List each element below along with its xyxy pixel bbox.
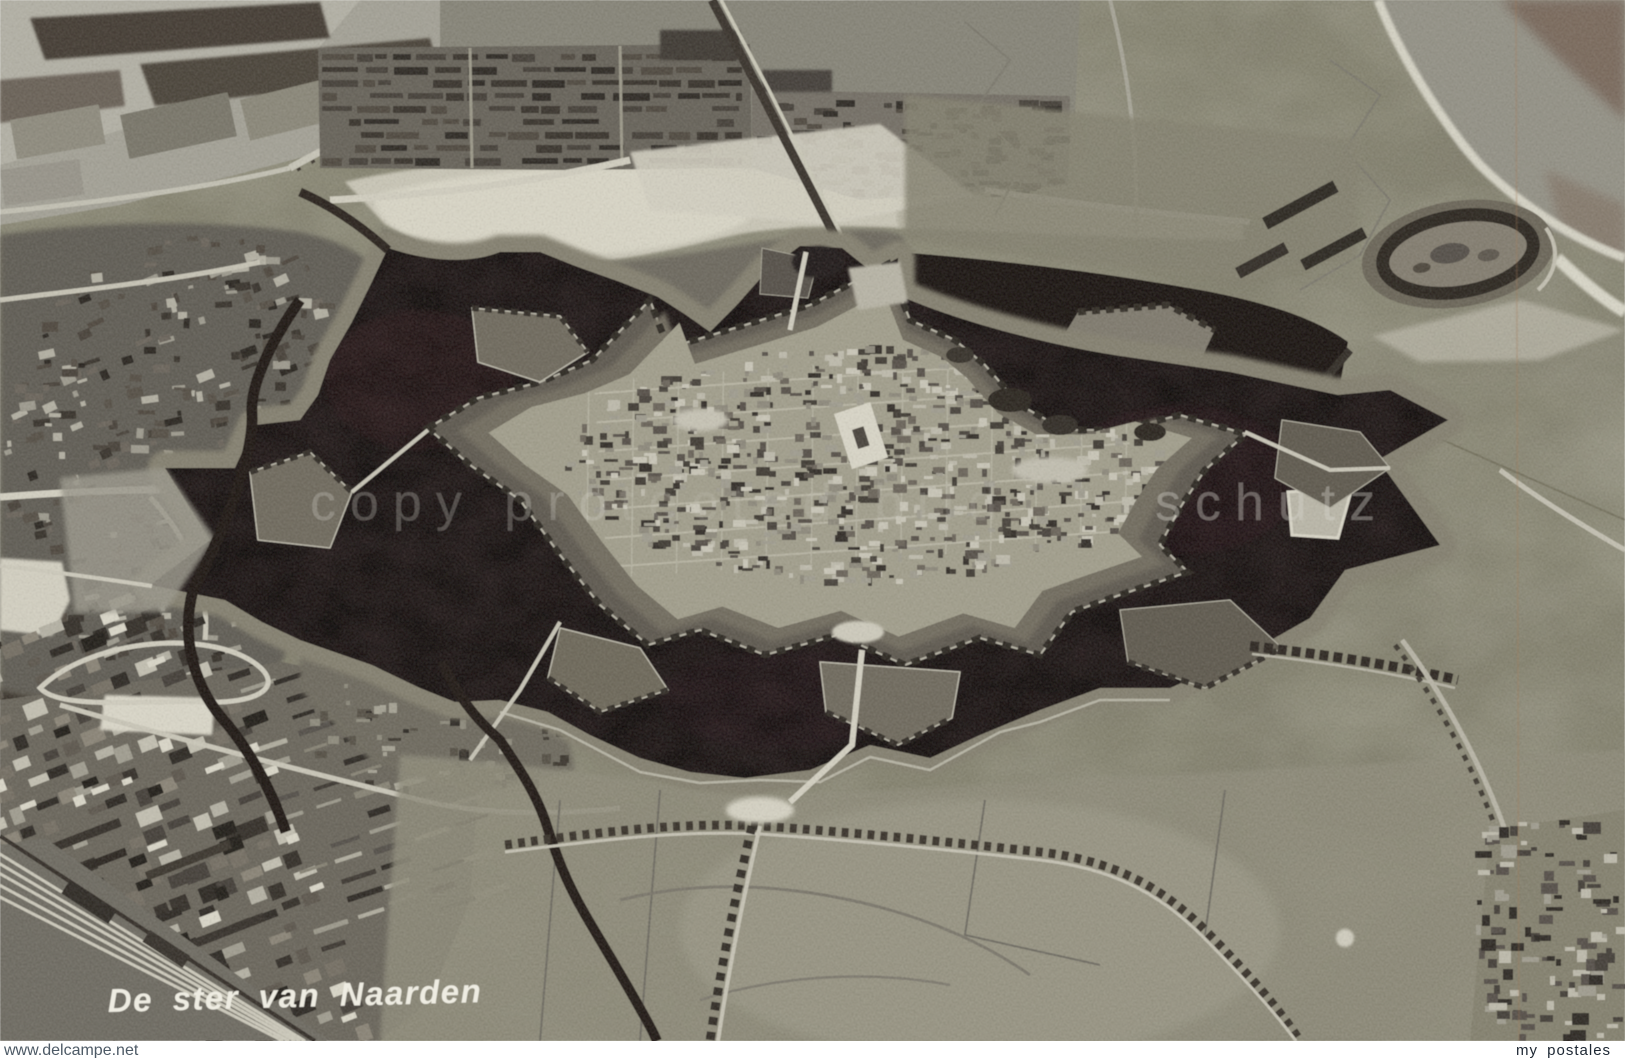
svg-text:tected bild: tected bild (620, 474, 1011, 532)
svg-text:my postales: my postales (1516, 1042, 1611, 1058)
svg-text:www.delcampe.net: www.delcampe.net (3, 1042, 139, 1058)
svg-text:schutz: schutz (1155, 474, 1389, 532)
svg-text:copy pro: copy pro (310, 474, 621, 532)
